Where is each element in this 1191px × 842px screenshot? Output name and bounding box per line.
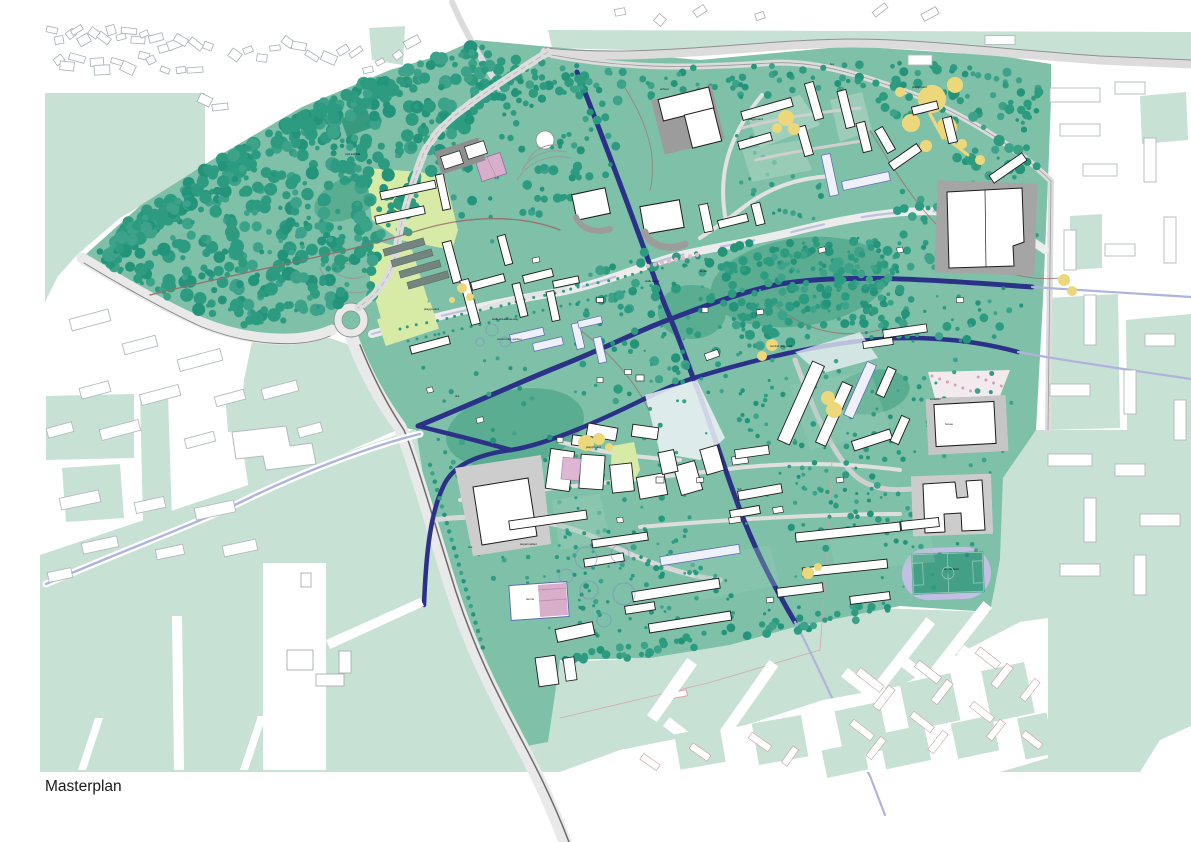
svg-text:kiosk: kiosk bbox=[700, 269, 707, 273]
svg-text:walk street/one-way: walk street/one-way bbox=[492, 317, 519, 321]
svg-text:playground: playground bbox=[424, 307, 439, 311]
svg-text:bus: bus bbox=[830, 62, 835, 66]
svg-text:playground: playground bbox=[912, 85, 927, 89]
svg-text:due: due bbox=[468, 545, 473, 549]
svg-text:supermarket: supermarket bbox=[520, 542, 537, 546]
svg-text:park and ride: park and ride bbox=[345, 152, 361, 156]
svg-text:community garden: community garden bbox=[497, 337, 522, 341]
svg-text:hub: hub bbox=[737, 487, 742, 491]
svg-text:playground: playground bbox=[748, 117, 763, 121]
svg-text:due: due bbox=[455, 394, 460, 398]
svg-text:tennis: tennis bbox=[526, 597, 535, 601]
svg-text:school: school bbox=[660, 87, 669, 91]
svg-text:walk street: walk street bbox=[645, 279, 660, 283]
svg-text:Masterplan: Masterplan bbox=[45, 778, 122, 795]
svg-text:playground: playground bbox=[586, 445, 601, 449]
svg-text:central play area: central play area bbox=[770, 344, 793, 348]
svg-text:kollektiv: kollektiv bbox=[930, 397, 941, 401]
svg-text:house: house bbox=[945, 422, 954, 426]
svg-text:sports field: sports field bbox=[944, 567, 959, 571]
